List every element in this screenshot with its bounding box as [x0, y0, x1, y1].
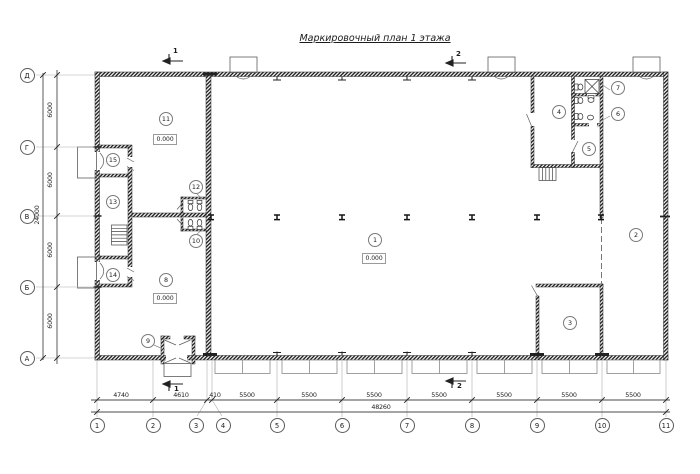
- grid-bubble-col-9: 9: [530, 418, 545, 433]
- windows: [215, 360, 660, 374]
- room-tag-6: 6: [611, 107, 625, 121]
- grid-bubble-col-3: 3: [189, 418, 204, 433]
- leader-lines: [154, 84, 610, 350]
- dim-label: 6000: [46, 230, 54, 270]
- room-tag-13: 13: [106, 195, 120, 209]
- grid-bubble-row-a: А: [20, 351, 35, 366]
- dim-label: 6000: [46, 160, 54, 200]
- section-label-2-top: 2: [456, 50, 461, 58]
- room-tag-1: 1: [368, 233, 382, 247]
- elevation-label-room1: 0.000: [362, 253, 386, 264]
- room-tag-11: 11: [159, 112, 173, 126]
- dim-label: 6000: [46, 301, 54, 341]
- room-tag-12: 12: [189, 180, 203, 194]
- dim-label: 5500: [554, 391, 584, 399]
- grid-bubble-row-g: Г: [20, 140, 35, 155]
- room-tag-2: 2: [629, 228, 643, 242]
- dim-label: 4740: [106, 391, 136, 399]
- room-tag-10: 10: [189, 234, 203, 248]
- drawing-title: Маркировочный план 1 этажа: [250, 33, 500, 44]
- plan-linework: [0, 0, 700, 474]
- floor-plan-drawing: Маркировочный план 1 этажа 1 2 1 2 1 2 3…: [0, 0, 700, 474]
- section-label-1-top: 1: [173, 47, 178, 55]
- room-tag-5: 5: [582, 142, 596, 156]
- room-tag-15: 15: [106, 153, 120, 167]
- grid-bubble-col-6: 6: [335, 418, 350, 433]
- dim-label: 4610: [166, 391, 196, 399]
- grid-bubble-col-7: 7: [400, 418, 415, 433]
- stairs: [112, 168, 557, 246]
- dim-label: 5500: [232, 391, 262, 399]
- grid-bubble-row-v: В: [20, 209, 35, 224]
- dim-label: 6000: [46, 90, 54, 130]
- dim-label: 410: [200, 391, 230, 399]
- dim-label: 5500: [489, 391, 519, 399]
- steel-columns: [208, 215, 604, 220]
- grid-bubble-col-2: 2: [146, 418, 161, 433]
- elevation-label-room8: 0.000: [153, 293, 177, 304]
- grid-bubble-col-4: 4: [216, 418, 231, 433]
- sanitary-fixtures: [188, 80, 599, 230]
- dim-total-label: 48260: [366, 403, 396, 411]
- dim-label: 5500: [359, 391, 389, 399]
- dim-label: 5500: [424, 391, 454, 399]
- grid-bubble-row-b: Б: [20, 280, 35, 295]
- room-tag-4: 4: [552, 105, 566, 119]
- room-tag-8: 8: [159, 273, 173, 287]
- room-tag-7: 7: [611, 81, 625, 95]
- room-tag-3: 3: [563, 316, 577, 330]
- grid-bubble-col-8: 8: [465, 418, 480, 433]
- grid-bubble-col-10: 10: [595, 418, 610, 433]
- grid-bubble-col-1: 1: [90, 418, 105, 433]
- grid-bubble-row-d: Д: [20, 68, 35, 83]
- elevation-label-room11: 0.000: [153, 134, 177, 145]
- dim-label: 5500: [294, 391, 324, 399]
- section-label-2-bottom: 2: [457, 382, 462, 390]
- dim-label: 5500: [618, 391, 648, 399]
- grid-bubble-col-11: 11: [659, 418, 674, 433]
- grid-bubble-col-5: 5: [270, 418, 285, 433]
- room-tag-9: 9: [141, 334, 155, 348]
- room-tag-14: 14: [106, 268, 120, 282]
